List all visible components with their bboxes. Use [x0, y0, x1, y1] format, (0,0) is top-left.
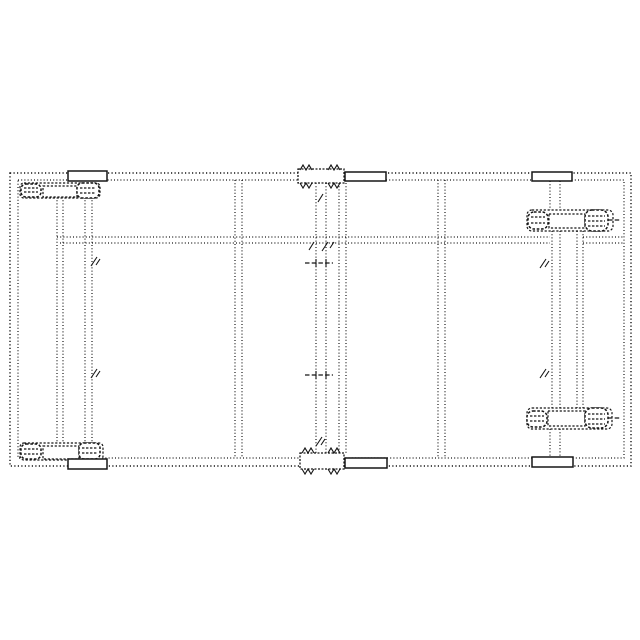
axle-plate: [548, 411, 585, 426]
drawing-sheet: [0, 0, 640, 640]
chassis-plan-drawing: [0, 0, 640, 640]
mount-lug: [68, 459, 107, 469]
jagged-mount-pad-bottom: [300, 448, 344, 474]
hatch-tick: [316, 437, 325, 446]
axle-plate: [43, 446, 79, 459]
tire: [79, 443, 100, 459]
hatch-tick: [540, 369, 549, 378]
tire: [528, 212, 548, 229]
tire: [527, 411, 547, 427]
wheel-assembly-bottom-left: [20, 443, 103, 460]
pivot-pin: [305, 259, 333, 267]
left-carriage-beams: [57, 197, 92, 444]
tire: [585, 408, 608, 428]
mount-lug: [68, 171, 107, 181]
center-rail-horizontal: [57, 237, 624, 243]
wheel-assembly-bottom-right: [527, 408, 620, 429]
mount-lug: [532, 457, 573, 467]
tire: [21, 184, 41, 197]
center-folding-post: [298, 165, 346, 474]
cross-member-left: [235, 180, 242, 458]
wheel-assembly-top-right: [527, 210, 621, 231]
axle-plate: [549, 214, 585, 228]
rail-crossing-scribble: [309, 242, 334, 251]
hatch-tick: [318, 194, 323, 202]
right-wheel-carriage: [527, 181, 621, 457]
tire: [77, 183, 99, 198]
mount-lug: [532, 172, 572, 181]
wheel-assembly-top-left: [20, 183, 100, 198]
jagged-mount-pad-top: [298, 165, 344, 188]
left-wheel-carriage: [20, 183, 103, 460]
mount-lug: [345, 458, 387, 468]
mount-lugs: [68, 171, 573, 469]
hatch-tick: [540, 259, 549, 268]
tire: [21, 444, 41, 459]
cross-member-right: [438, 180, 445, 458]
mount-lug: [345, 172, 386, 181]
pivot-pin: [305, 371, 333, 379]
tire: [585, 210, 608, 231]
center-post-beams: [316, 183, 346, 453]
axle-plate: [43, 186, 77, 197]
